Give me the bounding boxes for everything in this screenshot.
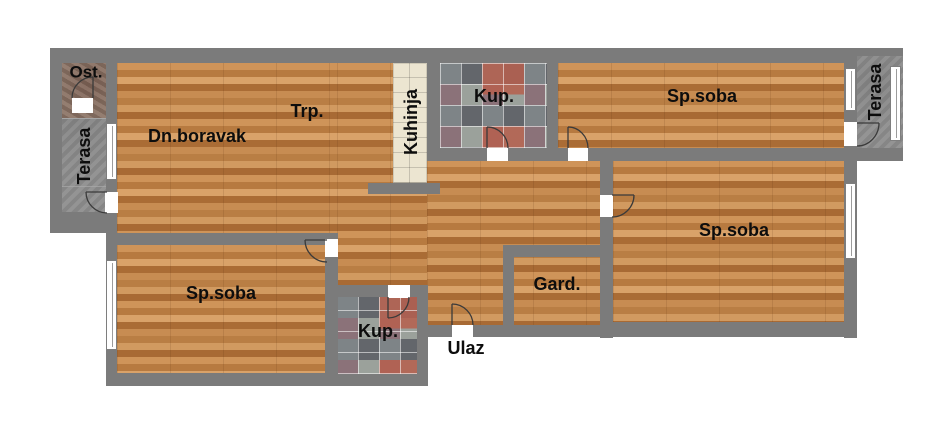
label-kup-top: Kup. — [474, 87, 514, 105]
label-dn-boravak: Dn.boravak — [148, 127, 246, 145]
floor-plan: Ost. Terasa Dn.boravak Trp. Kuhinja Kup.… — [0, 0, 950, 435]
window-bedroom-top-right — [845, 68, 856, 111]
terrace-divider-line — [62, 186, 106, 187]
label-gard: Gard. — [533, 275, 580, 293]
window-terasa-right-outer — [890, 66, 901, 141]
door-arc-bedroom-bottom-right — [612, 195, 634, 217]
wall-kitchen-stub — [368, 183, 440, 194]
floor-hallway-right — [427, 160, 613, 325]
wall-bathroom-top-right — [547, 48, 558, 160]
door-opening-entrance — [452, 325, 473, 338]
door-opening-bathroom-top — [487, 148, 508, 161]
wall-bedroom-bl-top — [106, 233, 337, 245]
wall-bedroom-bl-bottom — [106, 373, 337, 386]
window-terasa-left — [106, 123, 117, 180]
door-arc-terasa-right — [857, 123, 879, 146]
wall-top — [50, 48, 857, 63]
wall-bathroom-bottom-bottom — [327, 374, 428, 386]
window-bedroom-bottom-right — [845, 183, 856, 259]
label-sp-soba-bottom-left: Sp.soba — [186, 284, 256, 302]
label-kuhinja: Kuhinja — [402, 89, 420, 155]
label-sp-soba-top-right: Sp.soba — [667, 87, 737, 105]
label-terasa-left: Terasa — [75, 128, 93, 185]
door-arc-entrance — [452, 304, 473, 325]
window-bedroom-bottom-left — [106, 260, 117, 350]
wall-gard-left — [503, 245, 514, 337]
floor-bedroom-bottom-left — [117, 245, 325, 373]
label-terasa-right: Terasa — [866, 64, 884, 121]
wall-bathroom-bottom-top — [327, 285, 428, 297]
label-trp: Trp. — [290, 102, 323, 120]
door-arc-terasa-left — [86, 192, 107, 213]
door-opening-ost — [72, 98, 93, 113]
wall-gard-top — [503, 245, 613, 257]
label-ulaz: Ulaz — [447, 339, 484, 357]
wall-terasa-right-top — [857, 48, 903, 56]
door-arc-bathroom-top — [487, 127, 508, 148]
door-opening-terasa-right — [844, 122, 857, 146]
wall-kitchen-right — [427, 48, 440, 160]
door-arc-bedroom-bottom-left — [305, 240, 327, 262]
label-ost: Ost. — [69, 64, 102, 81]
floor-bedroom-bottom-right — [613, 160, 845, 322]
wall-bedroom-br-bottom — [600, 322, 857, 337]
label-sp-soba-bottom-right: Sp.soba — [699, 221, 769, 239]
wall-left-outer — [50, 48, 62, 230]
door-opening-bedroom-top-right — [568, 148, 588, 161]
door-arc-bathroom-bottom — [388, 297, 409, 318]
wall-bathroom-bottom-right — [417, 285, 428, 386]
door-arc-bedroom-top-right — [568, 127, 588, 148]
label-kup-bottom: Kup. — [358, 322, 398, 340]
